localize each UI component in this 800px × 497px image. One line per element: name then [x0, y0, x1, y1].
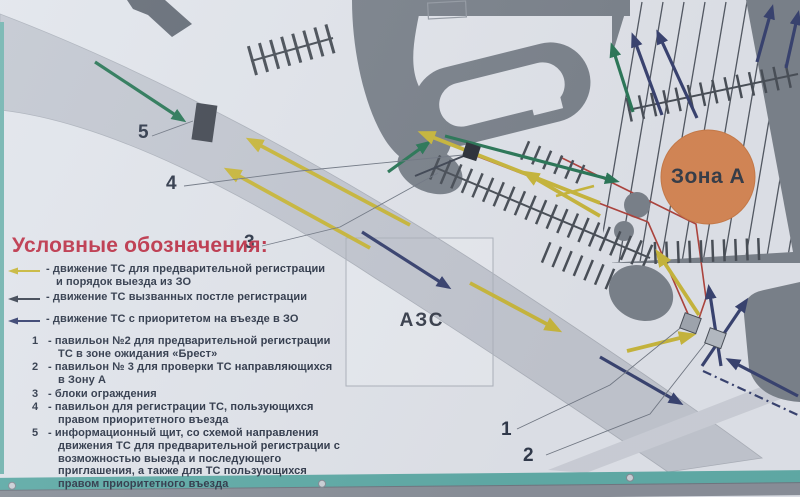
legend-text: правом приоритетного въезда: [48, 414, 314, 427]
legend-text: в Зону А: [48, 374, 332, 387]
legend-arrow-item-called: - движение ТС вызванных постле регистрац…: [6, 291, 352, 310]
legend-text: - движение ТС вызванных постле регистрац…: [46, 291, 307, 304]
legend-text: и порядок выезда из ЗО: [46, 276, 325, 289]
legend-text: возможностью выезда и последующего: [48, 453, 340, 466]
legend-title: Условные обозначения:: [12, 234, 352, 258]
legend-item-number: 2: [32, 361, 48, 374]
legend-item-number: 5: [32, 427, 48, 440]
legend-item-number: 4: [32, 401, 48, 414]
legend-text: - павильон для регистрации ТС, пользующи…: [48, 401, 314, 414]
legend-numbered-item-5: 5 - информационный щит, со схемой направ…: [6, 427, 352, 490]
yellow-arrow-icon: [6, 264, 46, 282]
legend-text: - блоки ограждения: [48, 388, 157, 401]
legend-text: - информационный щит, со схемой направле…: [48, 427, 340, 440]
legend-text: - павильон № 3 для проверки ТС направляю…: [48, 361, 332, 374]
callout-number-5: 5: [138, 123, 149, 142]
zone-a-label: Зона А: [658, 165, 758, 189]
legend-text: правом приоритетного въезда: [48, 478, 340, 491]
legend-text: ТС в зоне ожидания «Брест»: [48, 348, 330, 361]
legend-item-number: 1: [32, 335, 48, 348]
legend-text: - павильон №2 для предварительной регист…: [48, 335, 330, 348]
legend-text: приглашения, а также для ТС пользующихся: [48, 465, 340, 478]
legend-arrow-item-priority: - движение ТС с приоритетом на въезде в …: [6, 313, 352, 332]
legend-arrow-item-preliminary: - движение ТС для предварительной регист…: [6, 263, 352, 288]
azs-label: АЗС: [380, 310, 464, 332]
legend-numbered-item-4: 4 - павильон для регистрации ТС, пользую…: [6, 401, 352, 426]
legend-numbered-item-3: 3 - блоки ограждения: [6, 388, 352, 401]
legend-numbered-item-2: 2 - павильон № 3 для проверки ТС направл…: [6, 361, 352, 386]
legend-text: - движение ТС с приоритетом на въезде в …: [46, 313, 299, 326]
traffic-scheme-sign-photo: Зона А АЗС 5 4 3 1 2 Условные обозначени…: [0, 0, 800, 497]
bolt-icon: [626, 474, 633, 481]
callout-number-4: 4: [166, 174, 177, 193]
legend-text: движения ТС для предварительной регистра…: [48, 440, 340, 453]
legend-numbered-item-1: 1 - павильон №2 для предварительной реги…: [6, 335, 352, 360]
frame-left-strip: [0, 22, 4, 474]
callout-number-1: 1: [501, 420, 512, 439]
dark-arrow-icon: [6, 292, 46, 310]
legend-item-number: 3: [32, 388, 48, 401]
navy-arrow-icon: [6, 314, 46, 332]
callout-number-2: 2: [523, 446, 534, 465]
legend-text: - движение ТС для предварительной регист…: [46, 263, 325, 276]
legend: Условные обозначения: - движение ТС для …: [6, 234, 352, 491]
